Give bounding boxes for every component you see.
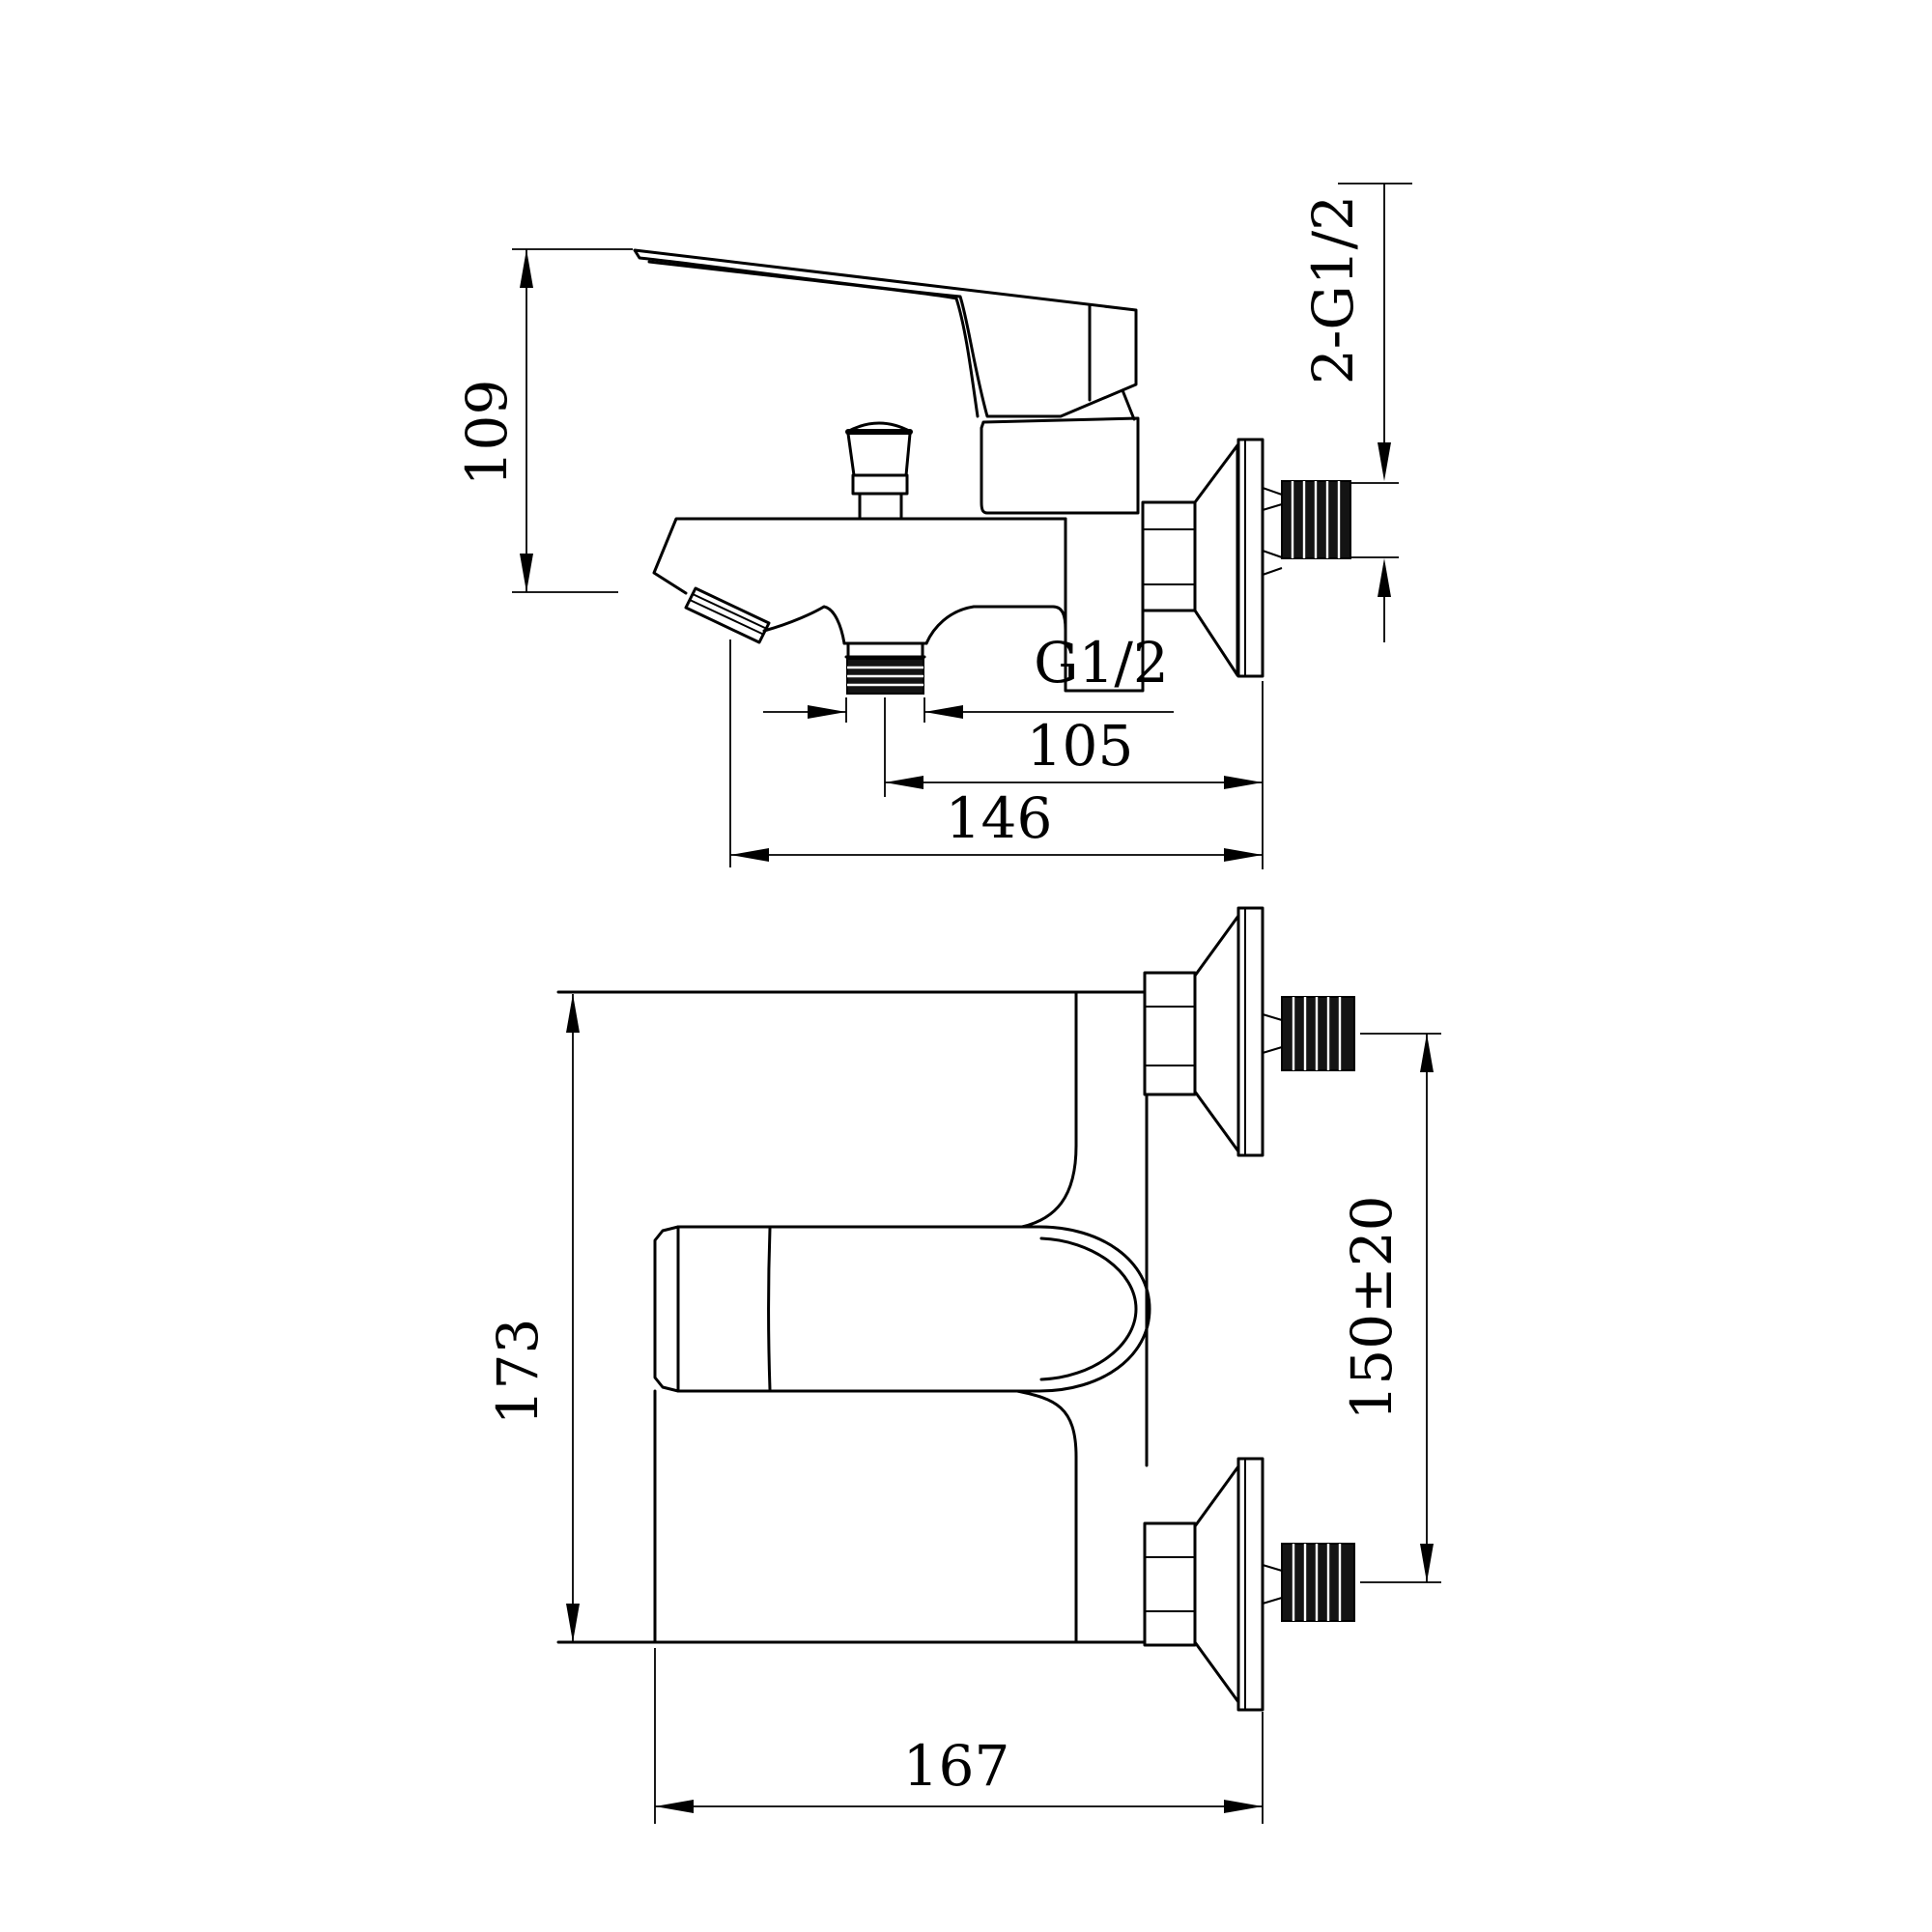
dim-146-label: 146	[946, 785, 1053, 851]
dim-2-g12: 2-G1/2	[1300, 184, 1412, 642]
dim-150: 150±20	[1339, 1034, 1441, 1582]
handle-plan	[655, 1227, 1150, 1391]
plan-view: 173 150±20 167	[485, 908, 1441, 1824]
diverter-knob	[847, 423, 911, 517]
bottom-inlet-plan	[1145, 1459, 1354, 1710]
cartridge-housing	[981, 418, 1138, 513]
dim-167: 167	[655, 1648, 1263, 1824]
dim-105-label: 105	[1027, 713, 1134, 779]
dim-109-label: 109	[454, 380, 520, 487]
dim-109: 109	[454, 249, 633, 592]
handle-side	[635, 250, 1136, 419]
dim-167-label: 167	[903, 1733, 1010, 1799]
drawing-page: 109 2-G1/2 G1/2 105 146	[0, 0, 1932, 1932]
dim-2-g12-label: 2-G1/2	[1300, 195, 1366, 384]
dim-150-label: 150±20	[1339, 1195, 1405, 1420]
body-barrel-plan	[558, 992, 1147, 1642]
dim-g12: G1/2	[763, 630, 1174, 723]
wall-flange-side	[1195, 440, 1282, 676]
dim-173: 173	[485, 992, 580, 1642]
dim-146: 146	[730, 639, 1263, 867]
side-view: 109 2-G1/2 G1/2 105 146	[454, 184, 1412, 869]
top-inlet-plan	[1145, 908, 1354, 1155]
hex-nut-side	[1143, 502, 1195, 611]
dim-173-label: 173	[485, 1319, 551, 1426]
faucet-technical-drawing: 109 2-G1/2 G1/2 105 146	[0, 0, 1932, 1932]
dim-g12-label: G1/2	[1034, 630, 1169, 696]
